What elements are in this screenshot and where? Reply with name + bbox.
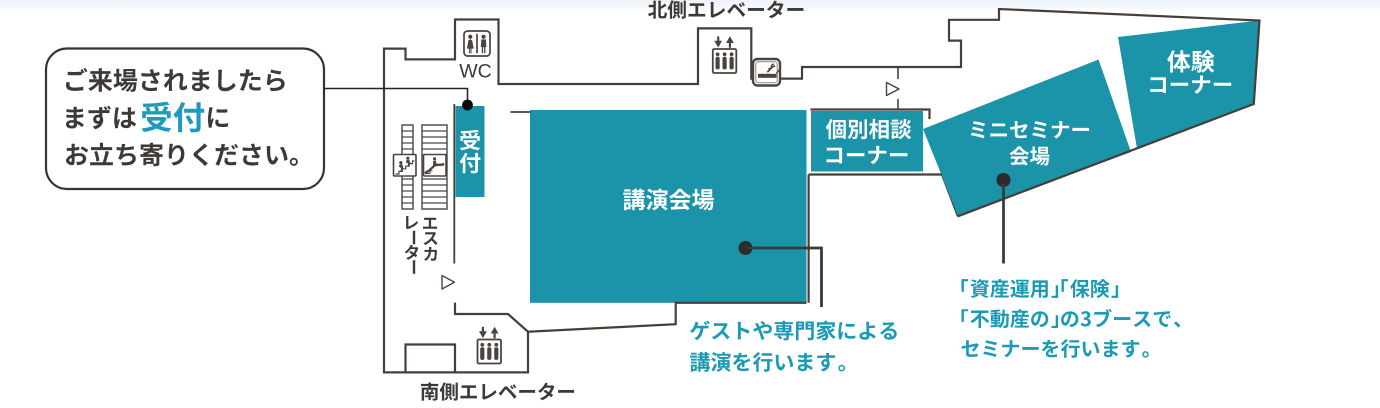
svg-text:WC: WC <box>459 61 492 83</box>
